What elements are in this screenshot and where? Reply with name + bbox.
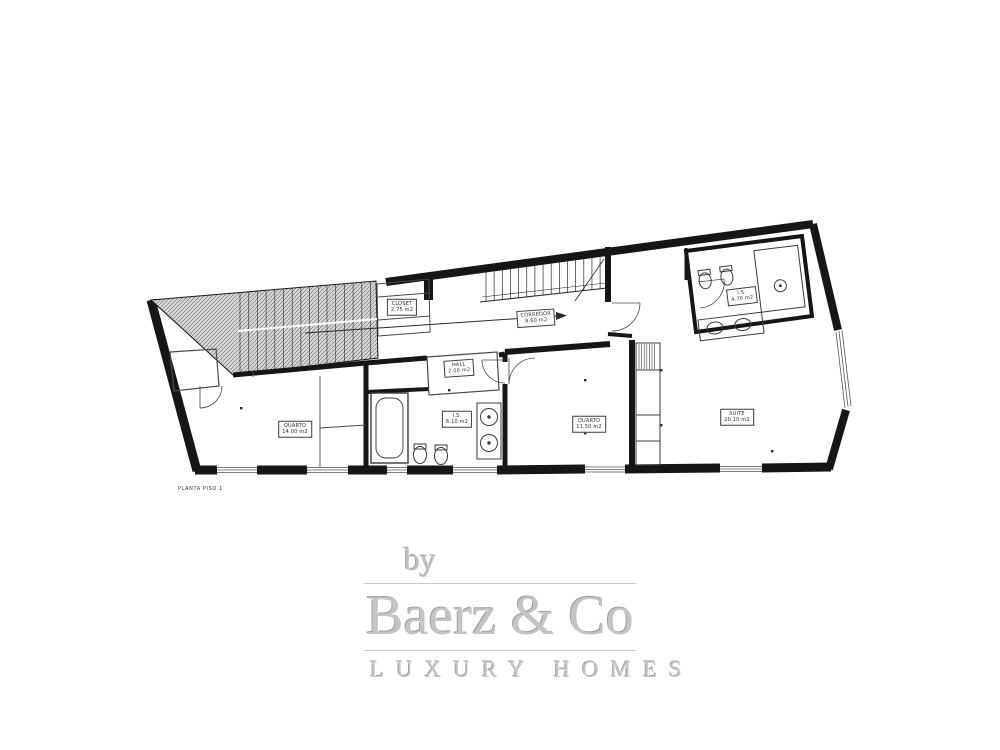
bidet2 (720, 265, 734, 285)
room-label-hall: HALL 2.00 m2 (443, 359, 474, 378)
bathtub (371, 393, 408, 463)
room-area: 4.70 m2 (731, 295, 754, 304)
shower (754, 245, 805, 312)
room-label-suite: SUITE 20.10 m2 (720, 409, 754, 426)
room-label-closet: CLOSET 2.75 m2 (387, 299, 417, 316)
wardrobe (636, 343, 660, 465)
room-area: 8.60 m2 (521, 317, 552, 325)
room-area: 11.50 m2 (576, 424, 602, 430)
room-label-corredor: CORREDOR 8.60 m2 (516, 308, 555, 327)
room-area: 14.00 m2 (282, 429, 308, 435)
room-area: 6.10 m2 (446, 419, 468, 425)
room-label-quarto1: QUARTO 14.00 m2 (278, 421, 312, 438)
logo-by-text: by (204, 543, 636, 575)
floorplan-page: CLOSET 2.75 m2 CORREDOR 8.60 m2 HALL 2.0… (0, 0, 1000, 750)
room-area: 2.75 m2 (391, 307, 413, 313)
room-area: 20.10 m2 (724, 417, 750, 423)
toilet (414, 444, 427, 464)
toilet2 (698, 269, 712, 289)
logo-divider-top (364, 583, 636, 584)
bathroom1-fixtures (371, 393, 501, 465)
logo-divider-bottom (364, 650, 636, 651)
room-label-quarto2: QUARTO 11.50 m2 (572, 416, 606, 433)
stair-arrow-head (556, 312, 567, 320)
staircase-hatched (151, 281, 378, 375)
logo-company-name: Baerz & Co (364, 586, 636, 646)
double-sink (477, 403, 501, 459)
room-area: 2.00 m2 (448, 367, 471, 375)
logo-tagline: LUXURY HOMES (370, 657, 636, 683)
brand-logo: by Baerz & Co LUXURY HOMES (364, 543, 636, 683)
wardrobe-slats (639, 344, 655, 369)
plan-title: PLANTA PISO 1 (178, 486, 223, 492)
bidet (435, 445, 448, 465)
room-label-wc1: I.S. 6.10 m2 (442, 411, 472, 428)
quarto1-partitions (253, 370, 366, 467)
